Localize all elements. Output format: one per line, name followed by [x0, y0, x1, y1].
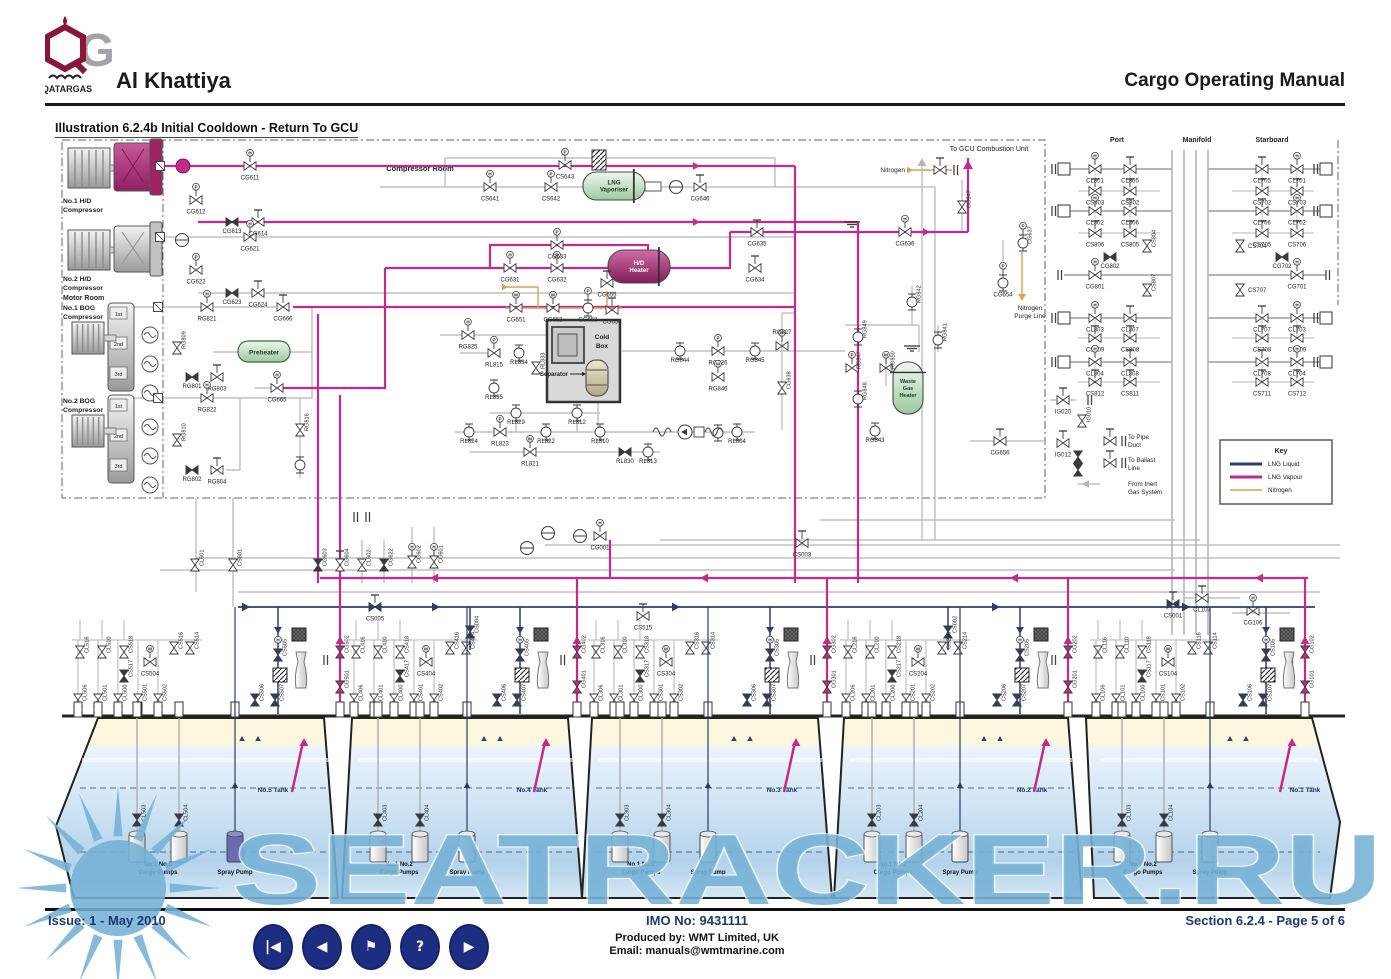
- valve-RG803: RG803: [207, 365, 227, 393]
- svg-text:CS704: CS704: [1248, 244, 1267, 250]
- valve-CG637: PCG637: [1018, 222, 1034, 251]
- svg-text:CS711: CS711: [1253, 392, 1272, 398]
- svg-text:RG804: RG804: [207, 480, 227, 486]
- svg-text:CG106: CG106: [1243, 621, 1263, 627]
- svg-text:Cargo Pumps: Cargo Pumps: [379, 870, 419, 876]
- svg-text:CS807: CS807: [1152, 274, 1158, 291]
- next-page-button[interactable]: ▶: [449, 924, 489, 970]
- svg-text:RL835: RL835: [485, 395, 503, 401]
- stage-label: 1st: [115, 312, 123, 318]
- svg-text:RL833: RL833: [541, 353, 547, 369]
- svg-text:CS316: CS316: [695, 632, 701, 649]
- svg-text:CG102: CG102: [1310, 635, 1316, 653]
- valve-CG634: CG634: [745, 256, 765, 284]
- valve-CS106: CS106: [1239, 684, 1254, 706]
- valve-CS406: CS406: [493, 684, 508, 706]
- stage-label: 2nd: [114, 342, 123, 348]
- valve-CS216: CS216: [938, 632, 953, 654]
- svg-text:RG825: RG825: [458, 345, 478, 351]
- svg-text:Purge Line: Purge Line: [1014, 313, 1046, 320]
- cargo-pump: [906, 834, 922, 862]
- spray-pump-label: Spray Pump: [217, 870, 252, 876]
- svg-text:CS101: CS101: [1161, 684, 1167, 701]
- svg-text:CL310: CL310: [623, 637, 629, 653]
- svg-text:M: M: [514, 293, 518, 298]
- port-header: Port: [1110, 137, 1125, 144]
- valve-CS001: CS001: [1164, 592, 1183, 620]
- valve-CS105: HCS105: [1262, 636, 1277, 661]
- tank-name: No.5 Tank: [258, 787, 289, 794]
- svg-text:CS206: CS206: [1002, 684, 1008, 701]
- svg-text:CS317: CS317: [645, 660, 651, 677]
- svg-text:CS402: CS402: [439, 684, 445, 701]
- svg-text:CS643: CS643: [556, 175, 575, 181]
- cargo-pumps-label: No.1 No.2: [144, 862, 172, 868]
- spray-pump: [1202, 834, 1218, 862]
- svg-text:CL304: CL304: [667, 805, 673, 821]
- svg-text:CL503: CL503: [142, 805, 148, 821]
- manifold-header: Manifold: [1183, 137, 1212, 144]
- valve-RG844: RG844: [670, 343, 690, 364]
- instrument-valve: [295, 457, 305, 473]
- footer-issue: Issue: 1 - May 2010: [48, 913, 166, 928]
- valve-RL830: RL830: [616, 448, 634, 465]
- svg-text:CS116: CS116: [1197, 632, 1203, 649]
- svg-text:RG841: RG841: [943, 323, 949, 341]
- svg-text:CS302: CS302: [679, 684, 685, 701]
- svg-text:RL824: RL824: [460, 439, 478, 445]
- svg-text:CL301: CL301: [619, 685, 625, 701]
- header-rule: [45, 103, 1345, 106]
- cargo-pump: [370, 834, 386, 862]
- svg-text:CL416: CL416: [361, 637, 367, 653]
- svg-text:Heater: Heater: [629, 267, 649, 274]
- valve-CG501: CG501: [336, 670, 351, 693]
- svg-text:P: P: [194, 185, 197, 190]
- svg-text:M: M: [551, 293, 555, 298]
- bookmark-icon: ⚑: [365, 939, 378, 955]
- svg-text:Cargo Pumps: Cargo Pumps: [1123, 870, 1163, 876]
- svg-text:CL104: CL104: [1169, 805, 1175, 821]
- svg-text:CS812: CS812: [1086, 392, 1105, 398]
- valve-CS506: CS506: [251, 684, 266, 706]
- svg-text:CG646: CG646: [690, 197, 710, 203]
- key-entry-label: LNG Liquid: [1268, 461, 1300, 468]
- valve-CG603: CG603: [314, 548, 329, 571]
- svg-text:CG637: CG637: [1028, 226, 1034, 244]
- svg-text:CL501: CL501: [103, 685, 109, 701]
- svg-text:CL107: CL107: [1193, 608, 1211, 614]
- svg-text:CL103: CL103: [1127, 805, 1133, 821]
- svg-text:CS117: CS117: [1147, 660, 1153, 677]
- svg-text:CS002: CS002: [953, 616, 959, 633]
- svg-text:CS314: CS314: [711, 632, 717, 649]
- cargo-pump: [1114, 834, 1130, 862]
- svg-text:CS107: CS107: [1268, 684, 1274, 701]
- key-title: Key: [1275, 448, 1288, 455]
- valve-CG102: CG102: [1301, 635, 1316, 658]
- svg-text:CS204: CS204: [909, 672, 928, 678]
- spray-pump: [952, 834, 968, 862]
- svg-text:CS515: CS515: [634, 626, 653, 632]
- hd2-label: No.2 H/D: [63, 276, 91, 283]
- svg-text:CG501: CG501: [345, 670, 351, 688]
- valve-RG804: RG804: [207, 458, 227, 486]
- svg-text:CG622: CG622: [389, 548, 395, 566]
- cargo-pump: [412, 834, 428, 862]
- hd1-label: No.1 H/D: [63, 198, 91, 205]
- svg-text:CS114: CS114: [1213, 632, 1219, 649]
- cargo-pump: [612, 834, 628, 862]
- svg-text:RL834: RL834: [510, 360, 528, 366]
- instrument-valve: [713, 425, 723, 441]
- valve-CS117: CS117: [1138, 660, 1153, 682]
- svg-text:M: M: [424, 647, 428, 652]
- svg-text:RG844: RG844: [670, 358, 690, 364]
- valve-CS643: PCS643: [556, 148, 575, 180]
- valve-RG848: RG848: [853, 382, 869, 407]
- footer-email: Email: manuals@wmtmarine.com: [547, 945, 847, 957]
- svg-text:CL406: CL406: [359, 685, 365, 701]
- svg-text:CG633: CG633: [547, 255, 567, 261]
- piping-diagram: Compressor RoomMotor Room1st2nd3rd1st2nd…: [0, 0, 1391, 979]
- valve-CG612: PCG612: [186, 183, 206, 215]
- svg-text:RG821: RG821: [197, 317, 217, 323]
- valve: [1074, 464, 1082, 476]
- svg-text:CS205: CS205: [1025, 639, 1031, 656]
- valve-CS316: CS316: [686, 632, 701, 654]
- valve-CG646: CG646: [690, 175, 710, 203]
- valve-CS418: CS418: [396, 636, 411, 658]
- svg-text:CS811: CS811: [1121, 392, 1140, 398]
- svg-text:CL504: CL504: [184, 805, 190, 821]
- svg-text:CS707: CS707: [1248, 288, 1267, 294]
- svg-text:RG809: RG809: [182, 331, 188, 349]
- svg-text:CS502: CS502: [163, 684, 169, 701]
- svg-text:CS514: CS514: [195, 632, 201, 649]
- svg-text:CS102: CS102: [1181, 684, 1187, 701]
- valve-CS417: CS417: [396, 660, 411, 682]
- svg-text:CL516: CL516: [85, 637, 91, 653]
- svg-text:CG603: CG603: [323, 548, 329, 566]
- to-ballast-label: To Ballast: [1128, 457, 1156, 464]
- cargo-pumps-label: No.1 No.2: [1129, 862, 1157, 868]
- svg-text:CS201: CS201: [911, 684, 917, 701]
- starboard-header: Starboard: [1255, 137, 1288, 144]
- svg-text:Compressor: Compressor: [63, 207, 103, 214]
- svg-text:P: P: [1021, 224, 1024, 229]
- tank-name: No.2 Tank: [1017, 787, 1048, 794]
- spray-pump: [227, 834, 243, 862]
- svg-text:CS405: CS405: [525, 639, 531, 656]
- spray-pump-label: Spray Pump: [690, 870, 725, 876]
- svg-text:CL306: CL306: [599, 685, 605, 701]
- next-page-icon: ▶: [464, 939, 475, 955]
- valve-CL601: CL601: [191, 550, 206, 571]
- valve-CG666: CG666: [273, 295, 293, 323]
- svg-text:Line: Line: [1128, 465, 1140, 472]
- valve-RG816: RG816: [296, 413, 311, 436]
- valve-CS214: CS214: [954, 632, 969, 654]
- svg-text:CL116: CL116: [1103, 637, 1109, 653]
- valve-RG849: RG849: [853, 320, 869, 345]
- svg-text:Gas: Gas: [903, 386, 913, 392]
- svg-text:CG201: CG201: [1073, 670, 1079, 688]
- tank-name: No.3 Tank: [767, 787, 798, 794]
- svg-text:CG502: CG502: [345, 635, 351, 653]
- svg-text:CL403: CL403: [383, 805, 389, 821]
- valve-CG604: CG604: [336, 548, 351, 571]
- valve-CS104: MCS104: [1159, 645, 1178, 677]
- svg-text:CS202: CS202: [931, 684, 937, 701]
- svg-text:CS506: CS506: [260, 684, 266, 701]
- svg-text:RG822: RG822: [197, 408, 217, 414]
- svg-text:CL510: CL510: [107, 637, 113, 653]
- svg-text:P: P: [586, 289, 589, 294]
- svg-text:CS003: CS003: [793, 553, 812, 559]
- svg-text:RL815: RL815: [485, 363, 503, 369]
- valve-CG624: CG624: [248, 281, 268, 309]
- footer-imo-number: IMO No: 9431111: [597, 913, 797, 928]
- tank-name: No.1 Tank: [1290, 787, 1321, 794]
- valve-CS515: CS515: [634, 604, 653, 632]
- valve-CG301: CG301: [823, 670, 838, 693]
- nitrogen-label: Nitrogen: [880, 167, 905, 174]
- svg-text:CS118: CS118: [1147, 636, 1153, 653]
- svg-text:Heater: Heater: [899, 393, 917, 399]
- svg-text:CL316: CL316: [601, 637, 607, 653]
- svg-text:CG638: CG638: [787, 371, 793, 389]
- separator-label: Separator: [540, 372, 569, 378]
- svg-text:Cargo Pumps: Cargo Pumps: [873, 870, 913, 876]
- svg-text:CS407: CS407: [522, 684, 528, 701]
- valve-IG020: IG020: [1055, 388, 1072, 416]
- valve-CS514: CS514: [186, 632, 201, 654]
- svg-text:CS401: CS401: [419, 684, 425, 701]
- svg-text:RL822: RL822: [537, 439, 555, 445]
- svg-text:CS306: CS306: [752, 684, 758, 701]
- svg-text:CS001: CS001: [1164, 614, 1183, 620]
- svg-text:CS318: CS318: [645, 636, 651, 653]
- bookmark-button[interactable]: ⚑: [351, 924, 391, 970]
- valve-CG201: CG201: [1064, 670, 1079, 693]
- svg-text:CG101: CG101: [1310, 670, 1316, 688]
- svg-text:CL601: CL601: [200, 550, 206, 566]
- valve-CG654: PCG654: [993, 262, 1013, 298]
- svg-text:CL110: CL110: [1125, 637, 1131, 653]
- cargo-pump: [171, 834, 187, 862]
- svg-text:CS307: CS307: [772, 684, 778, 701]
- svg-text:Vaporiser: Vaporiser: [600, 187, 629, 194]
- svg-text:Compressor: Compressor: [63, 314, 103, 321]
- manual-title: Cargo Operating Manual: [1124, 70, 1345, 92]
- svg-text:CS005: CS005: [366, 617, 385, 623]
- help-button[interactable]: ?: [400, 924, 440, 970]
- svg-text:CS516: CS516: [179, 632, 185, 649]
- svg-text:P: P: [563, 150, 566, 155]
- svg-text:CL303: CL303: [625, 805, 631, 821]
- svg-text:CS517: CS517: [129, 660, 135, 677]
- valve-CS317: CS317: [636, 660, 651, 682]
- first-page-button[interactable]: |◀: [253, 924, 293, 970]
- svg-text:CS404: CS404: [417, 672, 436, 678]
- cargo-pumps-label: No.1 No.2: [385, 862, 413, 868]
- svg-text:CS504: CS504: [141, 672, 160, 678]
- svg-text:CG647: CG647: [967, 190, 973, 208]
- valve-RL813: RL813: [639, 444, 657, 465]
- svg-text:RG842: RG842: [917, 285, 923, 303]
- cold-box-label: Cold: [595, 334, 609, 341]
- svg-text:M: M: [884, 353, 888, 358]
- svg-text:RG827: RG827: [772, 330, 792, 336]
- first-page-icon: |◀: [265, 939, 281, 955]
- svg-text:CG656: CG656: [990, 451, 1010, 457]
- svg-text:CL410: CL410: [383, 637, 389, 653]
- svg-text:RL830: RL830: [616, 459, 634, 465]
- to-pipe-duct-label: To Pipe: [1128, 434, 1150, 441]
- previous-page-icon: ◀: [317, 939, 328, 955]
- svg-text:RL823: RL823: [491, 442, 509, 448]
- svg-text:LNG: LNG: [607, 180, 620, 187]
- svg-text:M: M: [716, 362, 720, 367]
- valve-RL829: RL829: [507, 405, 525, 426]
- valve-CS204: MCS204: [909, 645, 928, 677]
- svg-text:Compressor: Compressor: [63, 407, 103, 414]
- cargo-pumps-label: No.1 No.2: [879, 862, 907, 868]
- footer-produced-by: Produced by: WMT Limited, UK: [547, 932, 847, 944]
- svg-text:CS207: CS207: [1022, 684, 1028, 701]
- svg-text:CG601: CG601: [439, 545, 445, 563]
- svg-text:CS416: CS416: [455, 632, 461, 649]
- valve-CG622: PCG622: [186, 253, 206, 285]
- svg-text:P: P: [498, 417, 501, 422]
- svg-text:RG810: RG810: [182, 423, 188, 441]
- svg-text:CS806: CS806: [1086, 243, 1105, 249]
- valve-CS306: CS306: [743, 684, 758, 706]
- svg-text:RG849: RG849: [863, 320, 869, 338]
- valve-CS517: CS517: [120, 660, 135, 682]
- valve-RG845: RG845: [745, 343, 765, 364]
- valve-CS404: MCS404: [417, 645, 436, 677]
- svg-text:CG402: CG402: [582, 635, 588, 653]
- cargo-tank: [56, 718, 338, 898]
- cargo-pump: [129, 834, 145, 862]
- svg-text:P: P: [850, 353, 853, 358]
- svg-text:CS305: CS305: [775, 639, 781, 656]
- svg-text:M: M: [528, 437, 532, 442]
- hd-heater: H/DHeater: [608, 247, 670, 286]
- spray-pump-label: Spray Pump: [449, 870, 484, 876]
- svg-text:CS804: CS804: [1152, 230, 1158, 247]
- valve-RG802: RG802: [182, 466, 202, 483]
- svg-text:CG702: CG702: [1272, 264, 1292, 270]
- svg-text:CG622: CG622: [186, 280, 206, 286]
- svg-text:CG636: CG636: [895, 242, 915, 248]
- footer-section-page: Section 6.2.4 - Page 5 of 6: [1185, 913, 1345, 928]
- svg-text:CS301: CS301: [659, 684, 665, 701]
- previous-page-button[interactable]: ◀: [302, 924, 342, 970]
- svg-text:P: P: [716, 336, 719, 341]
- valve: [1104, 451, 1116, 467]
- valve-CS318: CS318: [636, 636, 651, 658]
- svg-text:CG802: CG802: [1100, 264, 1120, 270]
- svg-text:CG634: CG634: [745, 278, 765, 284]
- valve-CG202: CG202: [1064, 635, 1079, 658]
- valve-CG001: HCG001: [590, 519, 610, 551]
- stage-label: 1st: [115, 404, 123, 410]
- valve-CL602: CL602: [358, 550, 373, 571]
- svg-text:CL210: CL210: [875, 637, 881, 653]
- valve-CS807: CS807: [1143, 274, 1158, 296]
- svg-text:CS406: CS406: [502, 684, 508, 701]
- cargo-pumps-label: No.1 No.2: [627, 862, 655, 868]
- valve-CS405: HCS405: [516, 636, 531, 661]
- valve: [1104, 429, 1116, 445]
- svg-text:M: M: [1166, 647, 1170, 652]
- valve-CG654: CG654: [602, 298, 622, 326]
- valve-CS206: CS206: [993, 684, 1008, 706]
- valve-CG502: CG502: [336, 635, 351, 658]
- illustration-title: Illustration 6.2.4b Initial Cooldown - R…: [55, 121, 358, 138]
- valve-RG847: PRG847: [846, 351, 863, 372]
- valve-RL822: RL822: [537, 424, 555, 445]
- svg-text:CL216: CL216: [853, 637, 859, 653]
- preheater-label: Preheater: [249, 350, 279, 357]
- svg-text:CS218: CS218: [897, 636, 903, 653]
- footer-rule: [45, 908, 1345, 911]
- valve-CS516: CS516: [170, 632, 185, 654]
- svg-text:P: P: [194, 255, 197, 260]
- svg-text:CG202: CG202: [1073, 635, 1079, 653]
- svg-text:RG801: RG801: [182, 384, 202, 390]
- svg-text:RG803: RG803: [207, 387, 227, 393]
- valve-CG613: CG613: [222, 218, 242, 235]
- bog2-label: No.2 BOG: [63, 398, 95, 405]
- svg-text:CG001: CG001: [590, 546, 610, 552]
- valve-RL815: PRL815: [485, 336, 503, 368]
- help-icon: ?: [416, 939, 424, 955]
- svg-text:CS518: CS518: [129, 636, 135, 653]
- svg-text:CL206: CL206: [851, 685, 857, 701]
- valve-CS218: CS218: [888, 636, 903, 658]
- svg-text:CG613: CG613: [222, 229, 242, 235]
- svg-text:P: P: [1001, 264, 1004, 269]
- svg-text:Compressor: Compressor: [63, 285, 103, 292]
- valve-RL835: RL835: [485, 380, 503, 401]
- svg-text:CL100: CL100: [1141, 685, 1147, 701]
- svg-text:CG801: CG801: [1085, 285, 1105, 291]
- stage-label: 3rd: [115, 372, 123, 378]
- svg-text:Duct: Duct: [1128, 442, 1141, 449]
- valve-CS504: MCS504: [141, 645, 160, 677]
- logo-brand-label: QATARGAS: [45, 84, 92, 94]
- svg-text:CL106: CL106: [1101, 685, 1107, 701]
- valve-RG843: RG843: [865, 423, 885, 444]
- tank-name: No.4 Tank: [517, 787, 548, 794]
- svg-text:Gas System: Gas System: [1128, 489, 1162, 496]
- svg-text:CS418: CS418: [405, 636, 411, 653]
- svg-text:RL829: RL829: [507, 420, 525, 426]
- valve-RG842: RG842: [907, 285, 923, 310]
- valve-CS116: CS116: [1188, 632, 1203, 654]
- spray-pump-label: Spray Pump: [942, 870, 977, 876]
- svg-text:CL204: CL204: [919, 805, 925, 821]
- svg-text:CS106: CS106: [1248, 684, 1254, 701]
- svg-text:CS601: CS601: [238, 549, 244, 566]
- valve-CS416: CS416: [446, 632, 461, 654]
- valve-CG106: HCG106: [1243, 594, 1263, 626]
- svg-text:Waste: Waste: [900, 379, 916, 385]
